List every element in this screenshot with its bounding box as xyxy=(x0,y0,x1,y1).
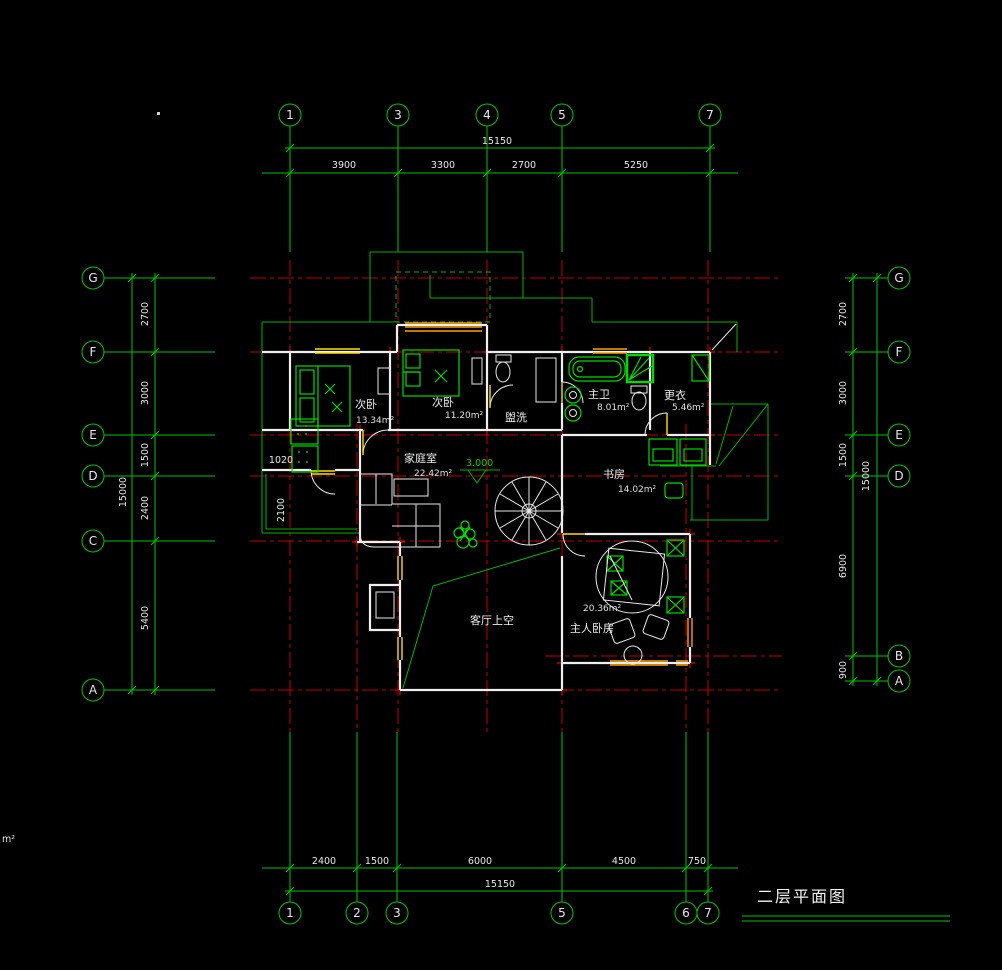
grid-bubble-1: 1 xyxy=(279,104,301,126)
room-area-master-bedroom: 20.36m² xyxy=(583,604,622,614)
bubble-label: 7 xyxy=(704,906,712,920)
furniture-bathtub xyxy=(569,357,625,381)
room-name-study: 书房 xyxy=(603,468,625,481)
room-area-master-bath: 8.01m² xyxy=(597,403,630,413)
grid-bubbles-left: G F E D C A xyxy=(82,267,104,701)
dim-right-seg1: 2700 xyxy=(838,302,849,326)
bubble-label: A xyxy=(89,683,98,697)
bubble-label: 6 xyxy=(682,906,690,920)
grid-bubble-Gr: G xyxy=(888,267,910,289)
fireplace-niche xyxy=(376,592,394,618)
furniture-dressing-wardrobe xyxy=(692,355,709,381)
dimension-lines-top: 15150 3900 3300 2700 5250 xyxy=(262,136,738,177)
bubble-label: 2 xyxy=(353,906,361,920)
room-name-master-bedroom: 主人卧房 xyxy=(570,622,614,635)
walls xyxy=(262,325,710,690)
level-marker-value: 3.000 xyxy=(466,458,493,469)
grid-bubble-Br: B xyxy=(888,645,910,667)
grid-bubble-1b: 1 xyxy=(279,902,301,924)
bubble-label: D xyxy=(894,469,903,483)
dim-right-seg2: 3000 xyxy=(838,381,849,405)
roof-hip-line xyxy=(712,324,736,350)
dim-left-seg4: 2400 xyxy=(140,496,151,520)
grid-bubble-Fr: F xyxy=(888,341,910,363)
bubble-label: A xyxy=(895,674,904,688)
dim-right-total: 15000 xyxy=(861,461,872,491)
floorplan-drawing: 15150 3900 3300 2700 5250 2400 1500 6000… xyxy=(0,0,1002,970)
dim-left-seg1: 2700 xyxy=(140,302,151,326)
dimension-lines-left: 2700 3000 1500 2400 5400 15000 xyxy=(118,273,159,695)
bubble-label: 7 xyxy=(706,108,714,122)
bubble-label: B xyxy=(895,649,903,663)
grid-bubble-Ar: A xyxy=(888,670,910,692)
bubble-label: 5 xyxy=(558,108,566,122)
dim-left-seg5: 5400 xyxy=(140,606,151,630)
dim-bot-total: 15150 xyxy=(485,879,515,890)
bubble-label: G xyxy=(88,271,97,285)
cad-floorplan-canvas: 15150 3900 3300 2700 5250 2400 1500 6000… xyxy=(0,0,1002,970)
dim-bot-seg4: 4500 xyxy=(612,856,636,867)
room-name-master-bath: 主卫 xyxy=(588,388,610,401)
level-marker: 3.000 xyxy=(460,458,500,483)
room-name-void: 客厅上空 xyxy=(470,613,514,627)
dim-top-seg1: 3900 xyxy=(332,160,356,171)
bubble-label: E xyxy=(895,428,903,442)
dimension-lines-bottom: 2400 1500 6000 4500 750 15150 xyxy=(262,856,738,895)
room-area-study: 14.02m² xyxy=(618,485,657,495)
grid-extension-lines xyxy=(104,126,888,902)
room-area-bedroom1: 13.34m² xyxy=(356,416,395,426)
grid-bubble-C: C xyxy=(82,530,104,552)
dim-top-total: 15150 xyxy=(482,136,512,147)
furniture-study-desks xyxy=(649,439,706,498)
grid-bubble-5b: 5 xyxy=(551,902,573,924)
bubble-label: F xyxy=(90,345,97,359)
grid-bubble-E: E xyxy=(82,424,104,446)
grid-bubble-Er: E xyxy=(888,424,910,446)
bubble-label: D xyxy=(88,469,97,483)
dimension-lines-right: 2700 3000 1500 6900 900 15000 xyxy=(838,273,881,686)
furniture-bathroom-sinks xyxy=(565,387,581,421)
room-area-bedroom2: 11.20m² xyxy=(445,411,484,421)
bubble-label: C xyxy=(89,534,97,548)
grid-bubbles-bottom: 1 2 3 5 6 7 xyxy=(279,902,719,924)
room-name-dressing: 更衣 xyxy=(664,388,686,402)
dim-top-seg2: 3300 xyxy=(431,160,455,171)
bubble-label: 4 xyxy=(483,108,491,122)
grid-bubble-Dr: D xyxy=(888,465,910,487)
grid-bubble-3: 3 xyxy=(387,104,409,126)
dim-right-seg3: 1500 xyxy=(838,443,849,467)
dim-left-seg3: 1500 xyxy=(140,443,151,467)
furniture-master-pillows-nightstands xyxy=(607,540,684,613)
grid-bubble-A: A xyxy=(82,679,104,701)
dim-balcony-2100: 2100 xyxy=(276,498,287,522)
grid-bubble-2b: 2 xyxy=(346,902,368,924)
bubble-label: F xyxy=(896,345,903,359)
red-centerlines xyxy=(250,260,782,732)
interior-dimensions: 1020 2100 xyxy=(269,455,293,522)
dim-top-seg3: 2700 xyxy=(512,160,536,171)
grid-bubbles-right: G F E D B A xyxy=(888,267,910,692)
dim-right-seg4: 6900 xyxy=(838,554,849,578)
furniture-wardrobe-cabinets xyxy=(291,419,318,472)
potted-plant xyxy=(454,521,477,548)
bubble-label: 5 xyxy=(558,906,566,920)
dim-bot-seg3: 6000 xyxy=(468,856,492,867)
grid-bubble-6b: 6 xyxy=(675,902,697,924)
dim-bot-seg1: 2400 xyxy=(312,856,336,867)
grid-bubble-D: D xyxy=(82,465,104,487)
bubble-label: 1 xyxy=(286,906,294,920)
grid-bubble-7b: 7 xyxy=(697,902,719,924)
corner-m2-fragment: m² xyxy=(2,834,15,845)
grid-bubble-F: F xyxy=(82,341,104,363)
furniture-sofa xyxy=(360,474,440,547)
room-name-family: 家庭室 xyxy=(404,451,437,465)
room-name-washroom: 盥洗 xyxy=(505,411,527,424)
bubble-label: 3 xyxy=(393,906,401,920)
dim-left-total: 15000 xyxy=(118,477,129,507)
dim-top-seg4: 5250 xyxy=(624,160,648,171)
grid-bubble-G: G xyxy=(82,267,104,289)
dim-left-seg2: 3000 xyxy=(140,381,151,405)
artifact-dot xyxy=(157,112,160,115)
dim-bot-seg2: 1500 xyxy=(365,856,389,867)
furniture-bed-secondary-2 xyxy=(403,350,459,396)
furniture-dresser-bedroom1 xyxy=(378,358,482,394)
bubble-label: 1 xyxy=(286,108,294,122)
drawing-title: 二层平面图 xyxy=(757,887,847,906)
grid-bubble-7: 7 xyxy=(699,104,721,126)
bubble-label: G xyxy=(894,271,903,285)
grid-bubble-5: 5 xyxy=(551,104,573,126)
grid-bubble-3b: 3 xyxy=(386,902,408,924)
dim-right-seg5: 900 xyxy=(838,661,849,679)
dim-bot-seg5: 750 xyxy=(688,856,706,867)
bubble-label: E xyxy=(89,428,97,442)
dim-alcove-1020: 1020 xyxy=(269,455,293,466)
stair-spiral xyxy=(495,477,563,545)
title-block: 二层平面图 xyxy=(742,887,950,921)
grid-bubble-4: 4 xyxy=(476,104,498,126)
bubble-label: 3 xyxy=(394,108,402,122)
grid-bubbles-top: 1 3 4 5 7 xyxy=(279,104,721,126)
room-name-bedroom1: 次卧 xyxy=(355,397,377,411)
furniture-round-bed xyxy=(596,541,668,613)
room-area-family: 22.42m² xyxy=(414,469,453,479)
room-area-dressing: 5.46m² xyxy=(672,403,705,413)
furniture-bed-secondary-1 xyxy=(296,366,350,426)
room-name-bedroom2: 次卧 xyxy=(432,395,454,409)
